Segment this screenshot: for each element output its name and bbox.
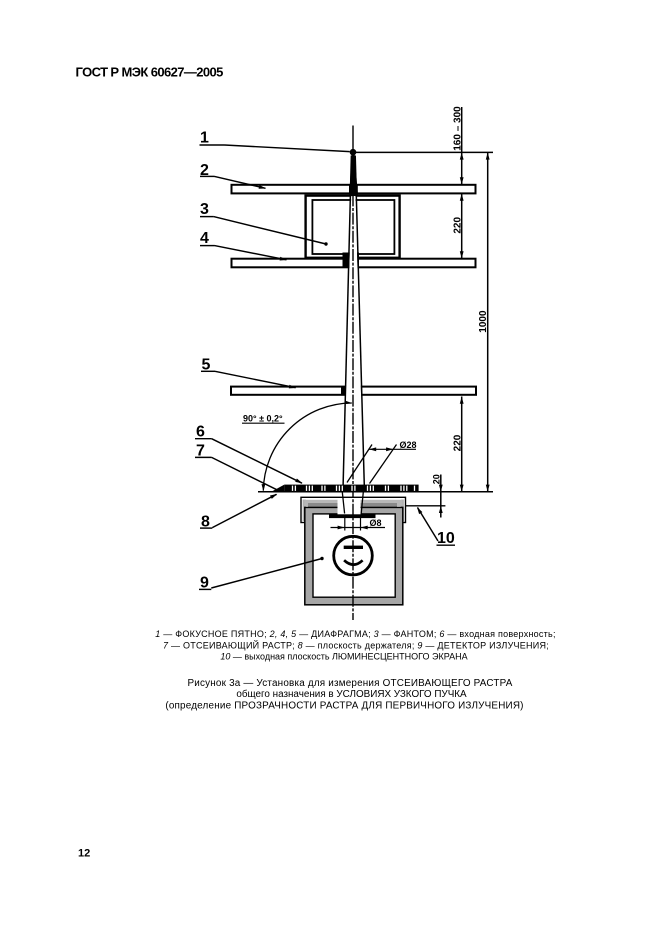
svg-text:10 — выходная плоскость ЛЮМИНЕ: 10 — выходная плоскость ЛЮМИНЕСЦЕНТНОГО … bbox=[220, 651, 467, 661]
svg-text:12: 12 bbox=[78, 848, 90, 860]
svg-text:ГОСТ Р МЭК 60627—2005: ГОСТ Р МЭК 60627—2005 bbox=[76, 65, 224, 80]
svg-text:1 — ФОКУСНОЕ ПЯТНО; 2, 4, 5 —: 1 — ФОКУСНОЕ ПЯТНО; 2, 4, 5 — ДИАФРАГМА;… bbox=[155, 629, 556, 639]
svg-text:1000: 1000 bbox=[478, 310, 489, 333]
svg-text:90° ± 0,2°: 90° ± 0,2° bbox=[243, 414, 283, 424]
svg-text:Ø8: Ø8 bbox=[370, 518, 382, 528]
svg-text:(определение ПРОЗРАЧНОСТИ РАСТ: (определение ПРОЗРАЧНОСТИ РАСТРА ДЛЯ ПЕР… bbox=[165, 700, 523, 711]
svg-text:220: 220 bbox=[453, 434, 464, 451]
svg-text:20: 20 bbox=[432, 474, 442, 484]
svg-text:7 — ОТСЕИВАЮЩИЙ РАСТР; 8 — пло: 7 — ОТСЕИВАЮЩИЙ РАСТР; 8 — плоскость дер… bbox=[163, 640, 549, 651]
svg-text:6: 6 bbox=[196, 424, 205, 441]
svg-text:160 – 300: 160 – 300 bbox=[453, 106, 464, 151]
svg-text:1: 1 bbox=[200, 130, 209, 147]
svg-text:4: 4 bbox=[200, 230, 209, 247]
svg-text:Ø28: Ø28 bbox=[400, 440, 417, 450]
svg-text:220: 220 bbox=[453, 217, 464, 234]
svg-text:10: 10 bbox=[437, 530, 455, 547]
svg-text:3: 3 bbox=[200, 201, 209, 218]
svg-text:общего назначения в УСЛОВИЯХ У: общего назначения в УСЛОВИЯХ УЗКОГО ПУЧК… bbox=[236, 689, 467, 700]
svg-text:Рисунок 3а — Установка для изм: Рисунок 3а — Установка для измерения ОТС… bbox=[188, 678, 513, 689]
